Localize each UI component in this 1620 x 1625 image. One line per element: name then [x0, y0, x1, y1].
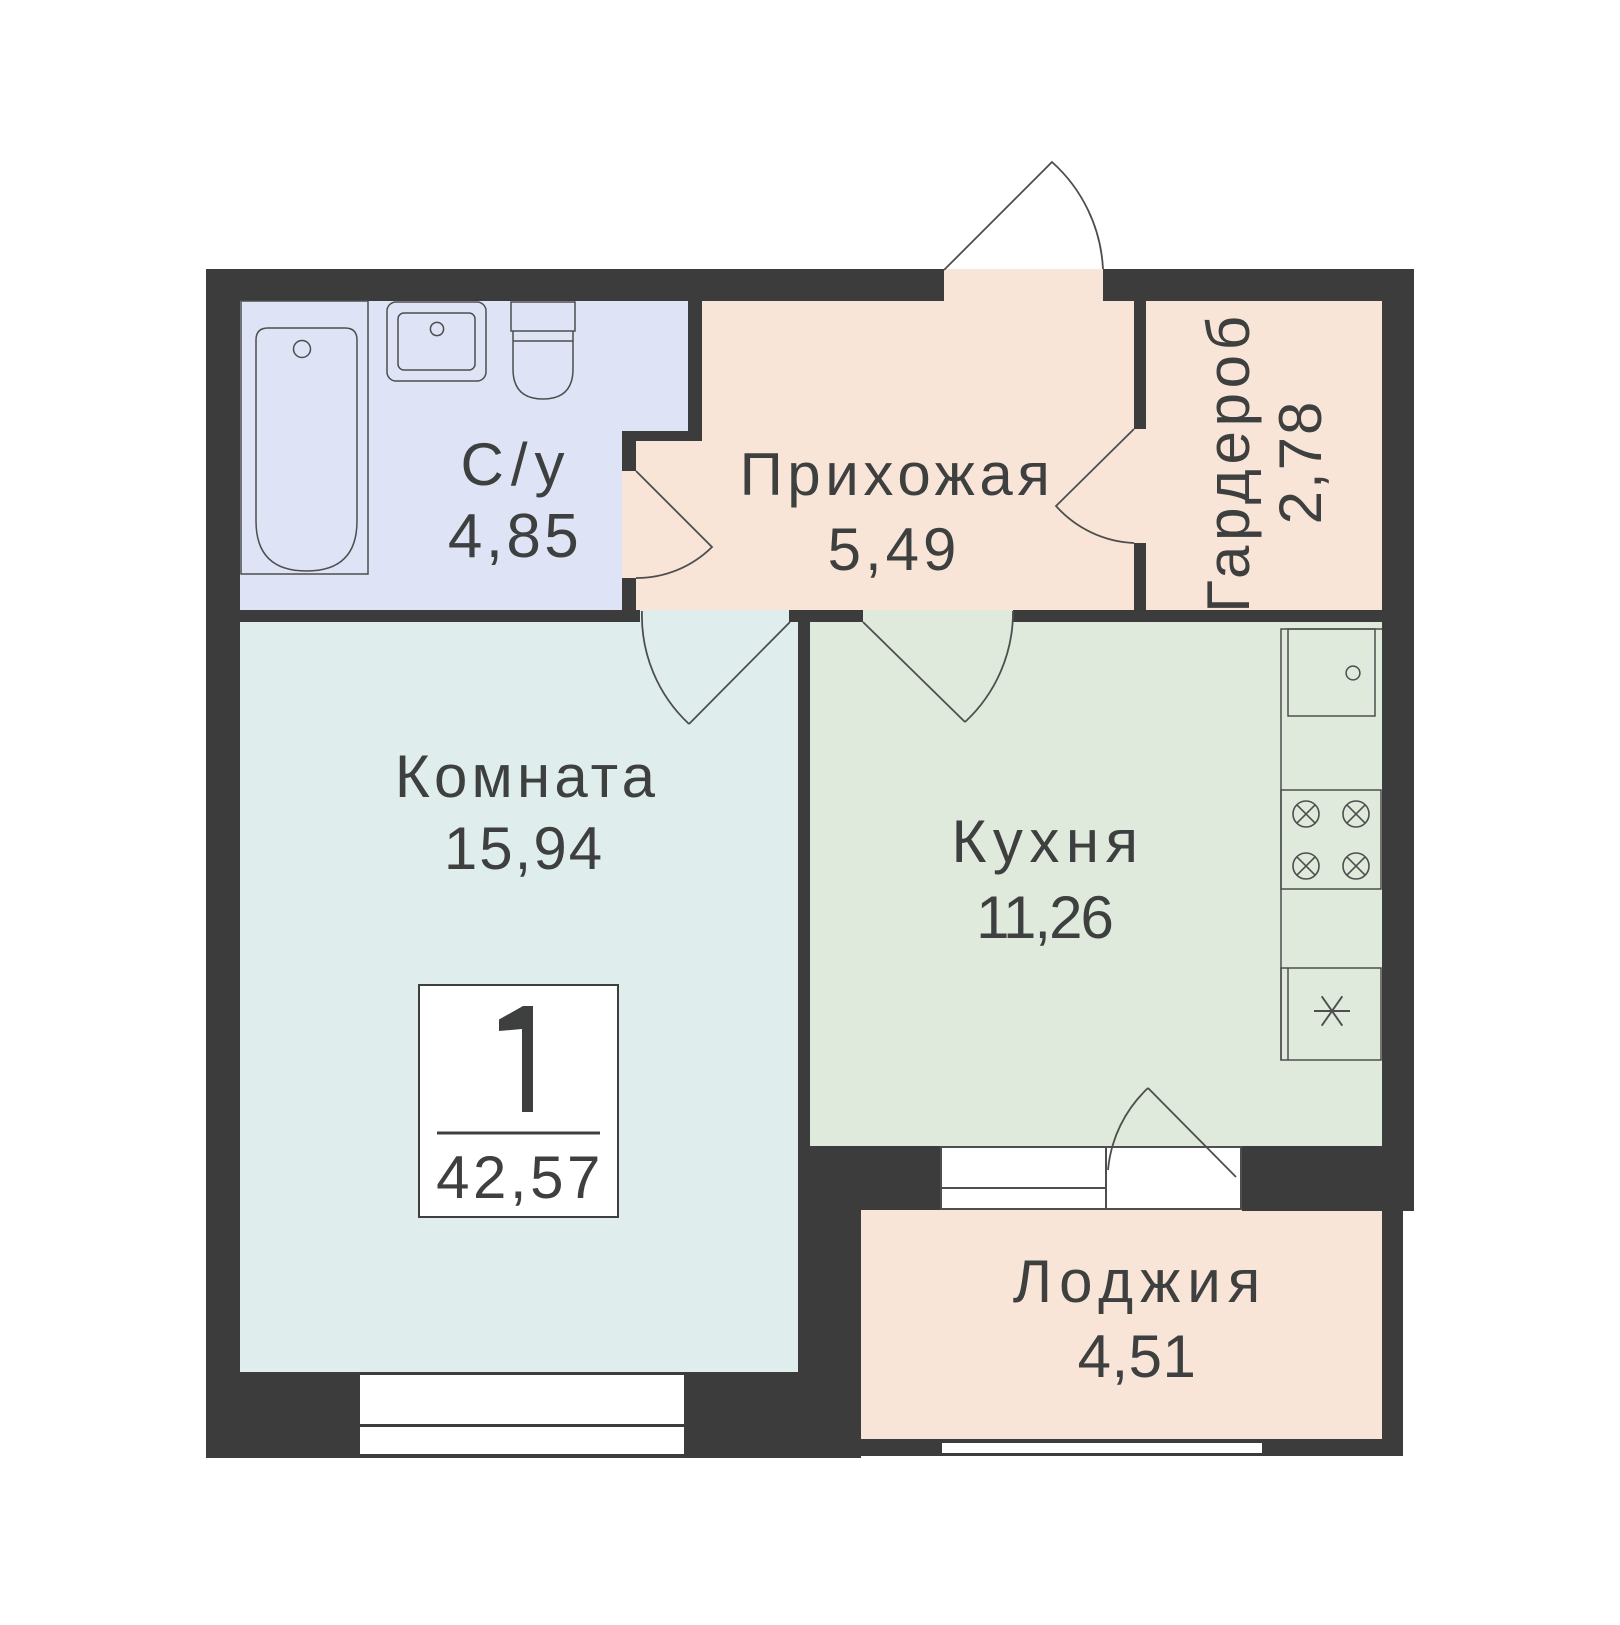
- svg-text:Гардероб: Гардероб: [1195, 311, 1262, 613]
- svg-text:С/у: С/у: [461, 431, 572, 498]
- svg-text:4,85: 4,85: [448, 502, 582, 571]
- svg-text:11,26: 11,26: [976, 884, 1112, 951]
- svg-text:15,94: 15,94: [444, 815, 604, 882]
- svg-text:Лоджия: Лоджия: [1013, 1248, 1268, 1315]
- svg-text:5,49: 5,49: [828, 516, 961, 583]
- svg-text:Комната: Комната: [395, 743, 659, 810]
- svg-text:2,78: 2,78: [1267, 400, 1334, 525]
- svg-text:Прихожая: Прихожая: [740, 441, 1055, 508]
- svg-text:42,57: 42,57: [436, 1144, 604, 1211]
- svg-text:Кухня: Кухня: [951, 808, 1144, 875]
- svg-text:4,51: 4,51: [1078, 1323, 1197, 1390]
